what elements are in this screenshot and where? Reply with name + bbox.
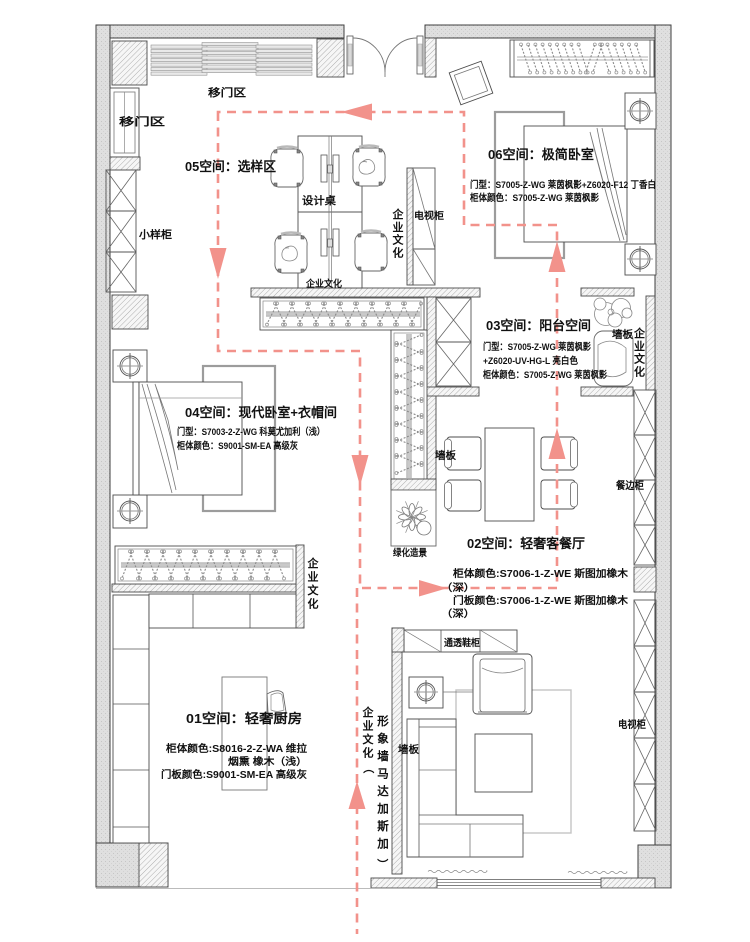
svg-text:门型：S7005-Z-WG 莱茵枫影+Z6020-F12 丁: 门型：S7005-Z-WG 莱茵枫影+Z6020-F12 丁香白 bbox=[470, 179, 656, 191]
svg-text:企: 企 bbox=[362, 705, 375, 719]
svg-text:餐边柜: 餐边柜 bbox=[615, 479, 644, 492]
svg-text:文: 文 bbox=[393, 233, 405, 247]
svg-text:烟熏 橡木（浅）: 烟熏 橡木（浅） bbox=[228, 755, 307, 768]
svg-text:化: 化 bbox=[634, 364, 645, 378]
svg-text:马: 马 bbox=[377, 768, 389, 781]
svg-text:象: 象 bbox=[377, 732, 389, 746]
svg-text:电视柜: 电视柜 bbox=[618, 718, 646, 731]
svg-text:墙: 墙 bbox=[377, 749, 389, 763]
svg-text:柜体颜色：S7005-Z-WG 莱茵枫影: 柜体颜色：S7005-Z-WG 莱茵枫影 bbox=[469, 192, 599, 204]
svg-text:）: ） bbox=[376, 859, 389, 870]
svg-text:墙板: 墙板 bbox=[435, 449, 457, 462]
svg-text:05空间：选样区: 05空间：选样区 bbox=[185, 159, 276, 174]
svg-text:+Z6020-UV-HG-L 亮白色: +Z6020-UV-HG-L 亮白色 bbox=[483, 355, 578, 367]
svg-text:化: 化 bbox=[363, 746, 374, 760]
svg-text:文: 文 bbox=[308, 583, 320, 597]
svg-text:门型：S7003-2-Z-WG 科莫尤加利（浅）: 门型：S7003-2-Z-WG 科莫尤加利（浅） bbox=[177, 426, 325, 438]
svg-text:设计桌: 设计桌 bbox=[302, 194, 337, 207]
svg-text:业: 业 bbox=[393, 220, 404, 234]
svg-text:02空间：轻奢客餐厅: 02空间：轻奢客餐厅 bbox=[467, 536, 585, 551]
svg-text:斯: 斯 bbox=[377, 819, 389, 833]
svg-text:（: （ bbox=[362, 763, 375, 774]
svg-text:文: 文 bbox=[634, 352, 646, 366]
svg-text:墙板: 墙板 bbox=[612, 328, 634, 341]
svg-text:墙板: 墙板 bbox=[398, 743, 420, 756]
svg-text:形: 形 bbox=[377, 715, 389, 728]
svg-text:06空间：极简卧室: 06空间：极简卧室 bbox=[488, 147, 594, 162]
svg-text:柜体颜色:S8016-2-Z-WA 维拉: 柜体颜色:S8016-2-Z-WA 维拉 bbox=[165, 742, 307, 755]
svg-text:门型：S7005-Z-WG 莱茵枫影: 门型：S7005-Z-WG 莱茵枫影 bbox=[483, 341, 591, 353]
svg-text:移门区: 移门区 bbox=[208, 86, 247, 99]
svg-text:门板颜色:S9001-SM-EA 高级灰: 门板颜色:S9001-SM-EA 高级灰 bbox=[161, 768, 307, 781]
svg-text:业: 业 bbox=[363, 719, 374, 733]
svg-text:（深）: （深） bbox=[441, 581, 475, 594]
svg-text:企业文化: 企业文化 bbox=[305, 278, 342, 290]
svg-text:柜体颜色：S9001-SM-EA 高级灰: 柜体颜色：S9001-SM-EA 高级灰 bbox=[176, 440, 298, 452]
svg-text:（深）: （深） bbox=[441, 607, 475, 620]
svg-text:业: 业 bbox=[634, 339, 645, 353]
svg-text:通透鞋柜: 通透鞋柜 bbox=[444, 637, 480, 649]
svg-text:电视柜: 电视柜 bbox=[414, 210, 445, 222]
svg-text:柜体颜色：S7005-Z-WG 莱茵枫影: 柜体颜色：S7005-Z-WG 莱茵枫影 bbox=[482, 369, 607, 381]
svg-text:加: 加 bbox=[376, 802, 389, 816]
svg-text:达: 达 bbox=[377, 784, 389, 798]
svg-text:企: 企 bbox=[392, 207, 405, 221]
svg-text:文: 文 bbox=[363, 732, 375, 746]
svg-text:业: 业 bbox=[308, 570, 319, 584]
svg-text:03空间：阳台空间: 03空间：阳台空间 bbox=[486, 318, 591, 333]
svg-text:企: 企 bbox=[633, 326, 646, 340]
svg-text:企: 企 bbox=[307, 556, 320, 570]
svg-text:化: 化 bbox=[393, 245, 404, 259]
svg-text:移门区: 移门区 bbox=[119, 115, 166, 128]
svg-text:小样柜: 小样柜 bbox=[138, 228, 173, 241]
svg-text:加: 加 bbox=[376, 837, 389, 851]
svg-text:绿化造景: 绿化造景 bbox=[393, 547, 427, 559]
svg-text:化: 化 bbox=[308, 597, 319, 611]
svg-text:门板颜色:S7006-1-Z-WE 斯图加橡木: 门板颜色:S7006-1-Z-WE 斯图加橡木 bbox=[453, 594, 629, 607]
svg-text:01空间：轻奢厨房: 01空间：轻奢厨房 bbox=[186, 711, 302, 726]
svg-text:柜体颜色:S7006-1-Z-WE 斯图加橡木: 柜体颜色:S7006-1-Z-WE 斯图加橡木 bbox=[452, 567, 629, 580]
svg-text:04空间：现代卧室+衣帽间: 04空间：现代卧室+衣帽间 bbox=[185, 405, 337, 420]
